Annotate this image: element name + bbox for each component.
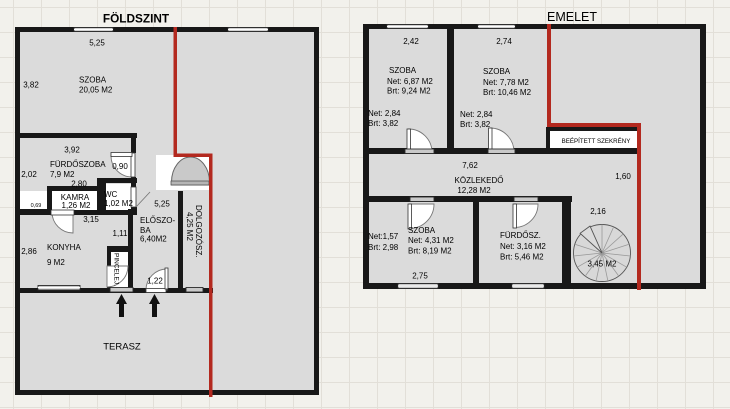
svg-text:SZOBA: SZOBA	[483, 67, 511, 76]
svg-text:Brt: 8,19 M2: Brt: 8,19 M2	[408, 247, 452, 256]
svg-text:PINCELEJ.: PINCELEJ.	[113, 253, 120, 286]
svg-text:2,02: 2,02	[21, 170, 37, 179]
svg-text:5,25: 5,25	[89, 39, 105, 48]
svg-text:1,60: 1,60	[615, 172, 631, 181]
svg-text:Net: 4,31 M2: Net: 4,31 M2	[408, 236, 454, 245]
svg-text:0,90: 0,90	[112, 162, 128, 171]
svg-text:1,11: 1,11	[113, 229, 129, 238]
svg-text:Net:1,57: Net:1,57	[368, 232, 399, 241]
svg-text:TERASZ: TERASZ	[103, 342, 141, 353]
svg-text:KONYHA: KONYHA	[47, 243, 81, 252]
svg-text:SZOBA: SZOBA	[389, 66, 417, 75]
svg-text:7,9 M2: 7,9 M2	[50, 170, 75, 179]
svg-text:5,25: 5,25	[154, 200, 170, 209]
svg-text:SZOBA: SZOBA	[79, 76, 107, 85]
svg-text:KÖZLEKEDŐ: KÖZLEKEDŐ	[455, 176, 504, 185]
svg-text:1,02 M2: 1,02 M2	[104, 199, 133, 208]
svg-text:ELŐSZO-: ELŐSZO-	[140, 216, 175, 225]
svg-text:Net: 7,78 M2: Net: 7,78 M2	[483, 78, 529, 87]
svg-text:3,45 M2: 3,45 M2	[588, 260, 617, 269]
svg-text:7,62: 7,62	[462, 161, 478, 170]
svg-text:2,16: 2,16	[590, 207, 606, 216]
svg-text:0,69: 0,69	[31, 203, 42, 209]
svg-text:4,25 M2: 4,25 M2	[185, 212, 194, 241]
svg-text:2,74: 2,74	[496, 37, 512, 46]
svg-text:3,82: 3,82	[23, 81, 39, 90]
svg-text:Brt: 2,98: Brt: 2,98	[368, 243, 399, 252]
svg-text:Net: 2,84: Net: 2,84	[460, 110, 493, 119]
svg-text:3,15: 3,15	[83, 215, 99, 224]
svg-text:12,28 M2: 12,28 M2	[457, 186, 491, 195]
svg-text:Brt: 3,82: Brt: 3,82	[368, 119, 399, 128]
svg-text:FÜRDŐSZ.: FÜRDŐSZ.	[500, 231, 541, 240]
svg-text:Brt: 3,82: Brt: 3,82	[460, 120, 491, 129]
svg-text:9 M2: 9 M2	[47, 258, 65, 267]
svg-text:1,26 M2: 1,26 M2	[62, 201, 91, 210]
svg-text:Net: 3,16 M2: Net: 3,16 M2	[500, 242, 546, 251]
svg-text:2,42: 2,42	[403, 37, 419, 46]
svg-text:Brt: 10,46 M2: Brt: 10,46 M2	[483, 88, 532, 97]
svg-text:2,75: 2,75	[412, 272, 428, 281]
svg-text:2,80: 2,80	[71, 180, 87, 189]
svg-text:WC: WC	[104, 190, 118, 199]
svg-text:6,40M2: 6,40M2	[140, 235, 167, 244]
svg-text:Net: 2,84: Net: 2,84	[368, 109, 401, 118]
svg-text:20,05 M2: 20,05 M2	[79, 86, 113, 95]
svg-text:DOLGOZÓSZ.: DOLGOZÓSZ.	[194, 205, 203, 257]
svg-text:Brt: 9,24 M2: Brt: 9,24 M2	[387, 87, 431, 96]
svg-text:Net: 6,87 M2: Net: 6,87 M2	[387, 77, 433, 86]
svg-text:EMELET: EMELET	[547, 10, 597, 24]
svg-text:1,22: 1,22	[147, 277, 163, 286]
svg-text:BEÉPÍTETT SZEKRÉNY: BEÉPÍTETT SZEKRÉNY	[562, 138, 631, 145]
svg-text:FÖLDSZINT: FÖLDSZINT	[103, 11, 170, 25]
svg-text:3,92: 3,92	[64, 146, 80, 155]
svg-text:SZOBA: SZOBA	[408, 226, 436, 235]
svg-text:FÜRDŐSZOBA: FÜRDŐSZOBA	[50, 160, 106, 169]
svg-text:2,86: 2,86	[21, 247, 37, 256]
svg-text:Brt: 5,46 M2: Brt: 5,46 M2	[500, 253, 544, 262]
